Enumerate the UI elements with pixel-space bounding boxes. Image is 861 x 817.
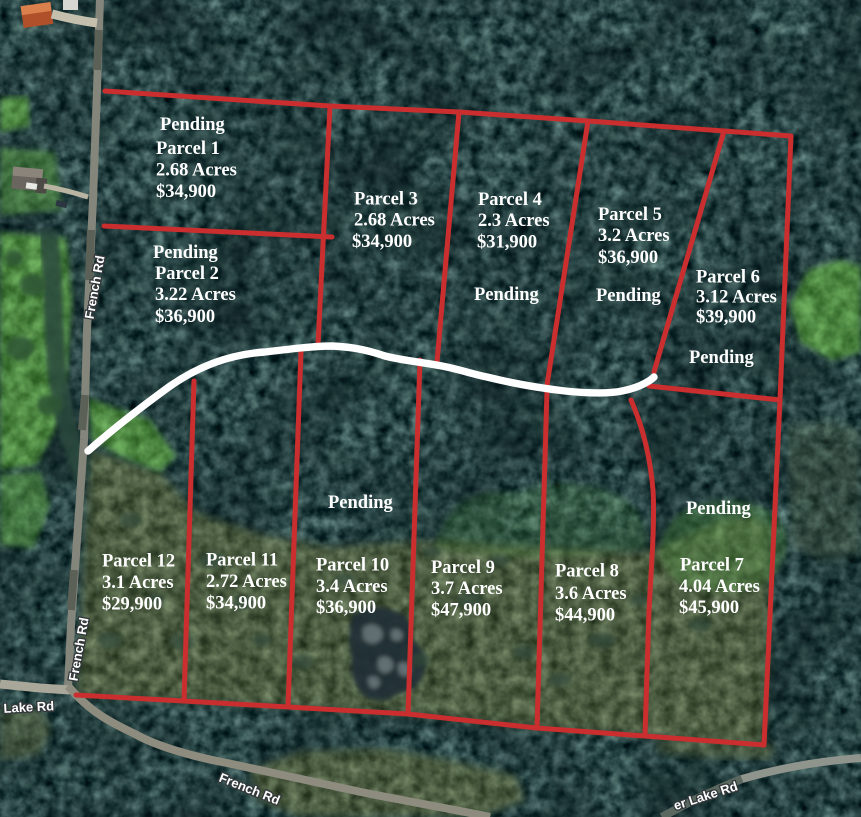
svg-text:$31,900: $31,900 [477, 233, 537, 253]
svg-text:4.04 Acres: 4.04 Acres [679, 577, 760, 597]
svg-text:Pending: Pending [686, 499, 752, 519]
svg-text:Parcel 10: Parcel 10 [316, 556, 389, 576]
svg-text:3.2 Acres: 3.2 Acres [598, 226, 670, 246]
svg-text:3.6 Acres: 3.6 Acres [555, 584, 627, 604]
svg-text:2.72 Acres: 2.72 Acres [206, 572, 287, 592]
svg-text:Pending: Pending [328, 493, 394, 513]
svg-text:Parcel 11: Parcel 11 [206, 551, 278, 571]
svg-text:Parcel 2: Parcel 2 [155, 264, 219, 284]
svg-text:Parcel 8: Parcel 8 [555, 562, 619, 582]
svg-text:Pending: Pending [596, 286, 662, 306]
svg-text:$34,900: $34,900 [352, 232, 412, 252]
svg-text:$36,900: $36,900 [155, 307, 215, 327]
svg-text:Pending: Pending [689, 348, 755, 368]
svg-text:Pending: Pending [153, 243, 219, 263]
svg-text:$36,900: $36,900 [598, 248, 658, 268]
svg-text:r Lake Rd: r Lake Rd [0, 698, 55, 716]
svg-text:Parcel 7: Parcel 7 [680, 556, 744, 576]
svg-text:$36,900: $36,900 [316, 598, 376, 618]
svg-text:3.4 Acres: 3.4 Acres [316, 577, 388, 597]
svg-text:Pending: Pending [160, 115, 226, 135]
svg-text:$29,900: $29,900 [102, 595, 162, 615]
svg-text:3.12 Acres: 3.12 Acres [696, 287, 777, 307]
svg-text:$39,900: $39,900 [696, 307, 756, 327]
svg-text:Pending: Pending [474, 285, 540, 305]
svg-text:Parcel 1: Parcel 1 [156, 139, 220, 159]
svg-text:Parcel 6: Parcel 6 [696, 267, 760, 287]
svg-text:Parcel 4: Parcel 4 [478, 190, 542, 210]
svg-text:2.68 Acres: 2.68 Acres [354, 211, 435, 231]
svg-text:2.3 Acres: 2.3 Acres [478, 211, 550, 231]
svg-text:3.22 Acres: 3.22 Acres [155, 285, 236, 305]
svg-text:$44,900: $44,900 [555, 606, 615, 626]
svg-text:3.1 Acres: 3.1 Acres [102, 573, 174, 593]
svg-text:$34,900: $34,900 [156, 182, 216, 202]
svg-text:$34,900: $34,900 [206, 594, 266, 614]
svg-text:Parcel 9: Parcel 9 [431, 558, 495, 578]
svg-text:Parcel 3: Parcel 3 [354, 190, 418, 210]
svg-text:2.68 Acres: 2.68 Acres [156, 161, 237, 181]
svg-text:$47,900: $47,900 [431, 601, 491, 621]
svg-text:3.7 Acres: 3.7 Acres [431, 579, 503, 599]
svg-text:$45,900: $45,900 [679, 598, 739, 618]
svg-text:Parcel 5: Parcel 5 [598, 205, 662, 225]
svg-text:Parcel 12: Parcel 12 [102, 552, 175, 572]
